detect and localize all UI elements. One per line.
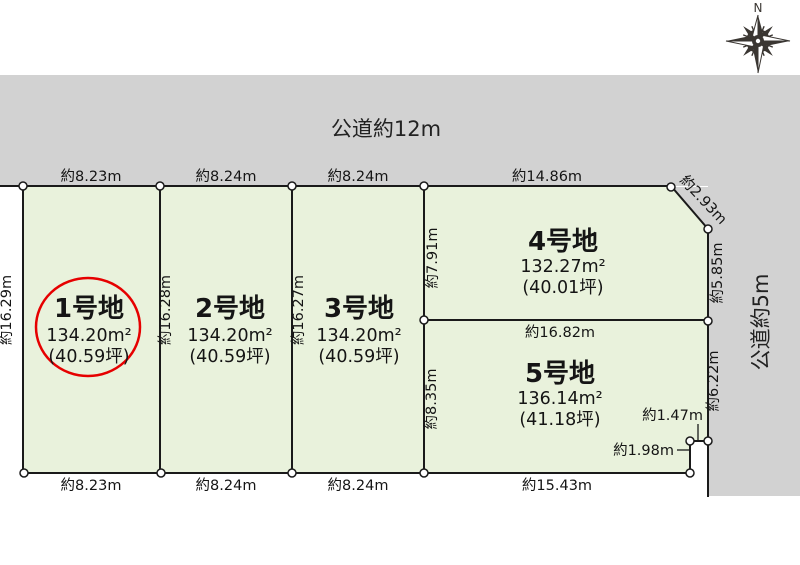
plot-3-area: 134.20m² <box>316 326 401 346</box>
dim-top-plot1: 約8.23m <box>61 168 122 185</box>
plot-3-tsubo: (40.59坪) <box>318 347 399 367</box>
dim-plot5-right: 約6.22m <box>705 351 722 412</box>
plot-3-label: 3号地 134.20m² (40.59坪) <box>316 294 401 367</box>
plot-3-name: 3号地 <box>324 294 394 324</box>
vertex-dot <box>157 469 165 477</box>
plot-2-label: 2号地 134.20m² (40.59坪) <box>187 294 272 367</box>
vertex-dot <box>156 182 164 190</box>
dim-bottom-plot3: 約8.24m <box>328 477 389 494</box>
vertex-dot <box>667 183 675 191</box>
vertex-dot <box>288 469 296 477</box>
dim-top-plot3: 約8.24m <box>328 168 389 185</box>
plot-4-area: 132.27m² <box>520 257 605 277</box>
vertex-dot <box>686 469 694 477</box>
plot-1-tsubo: (40.59坪) <box>48 347 129 367</box>
vertex-dot <box>420 182 428 190</box>
road-top-label: 公道約12m <box>331 117 441 141</box>
plot-2-area: 134.20m² <box>187 326 272 346</box>
dim-plot2-left: 約16.28m <box>157 275 174 345</box>
vertex-dot <box>704 317 712 325</box>
dim-bottom-plot2: 約8.24m <box>196 477 257 494</box>
dim-notch-top: 約1.47m <box>642 407 703 424</box>
dim-plot4-left: 約7.91m <box>424 228 441 289</box>
vertex-dot <box>20 469 28 477</box>
dim-plot1-left: 約16.29m <box>0 275 15 345</box>
compass-icon: N <box>726 1 790 73</box>
road-right-label: 公道約5m <box>749 274 773 371</box>
dim-top-plot4: 約14.86m <box>512 168 582 185</box>
plot-1-name: 1号地 <box>54 294 124 324</box>
plot-5-name: 5号地 <box>525 359 595 389</box>
plot-4-name: 4号地 <box>528 227 598 257</box>
plot-4-tsubo: (40.01坪) <box>522 278 603 298</box>
plot-5-tsubo: (41.18坪) <box>519 410 600 430</box>
dim-plot5-left: 約8.35m <box>423 369 440 430</box>
dim-plot3-left: 約16.27m <box>290 275 307 345</box>
dim-plot4-right: 約5.85m <box>709 243 726 304</box>
plot-5-label: 5号地 136.14m² (41.18坪) <box>517 359 602 430</box>
vertex-dot <box>19 182 27 190</box>
dim-bottom-plot1: 約8.23m <box>61 477 122 494</box>
dim-plot45-boundary: 約16.82m <box>525 324 595 341</box>
vertex-dot <box>420 316 428 324</box>
dim-notch-side: 約1.98m <box>613 442 674 459</box>
plot-4-label: 4号地 132.27m² (40.01坪) <box>520 227 605 298</box>
vertex-dot <box>288 182 296 190</box>
land-plot-diagram: 公道約12m 公道約5m 約8.23m 約8.24m 約8.24m 約14.86… <box>0 0 800 565</box>
plot-1-label: 1号地 134.20m² (40.59坪) <box>46 294 131 367</box>
plot-2-tsubo: (40.59坪) <box>189 347 270 367</box>
vertex-dot <box>420 469 428 477</box>
compass-north-label: N <box>754 1 763 15</box>
dim-top-plot2: 約8.24m <box>196 168 257 185</box>
vertex-dot <box>704 437 712 445</box>
dim-bottom-plot5: 約15.43m <box>522 477 592 494</box>
plot-2-name: 2号地 <box>195 294 265 324</box>
vertex-dot <box>704 225 712 233</box>
plot-1-area: 134.20m² <box>46 326 131 346</box>
plot-5-area: 136.14m² <box>517 389 602 409</box>
vertex-dot <box>686 437 694 445</box>
